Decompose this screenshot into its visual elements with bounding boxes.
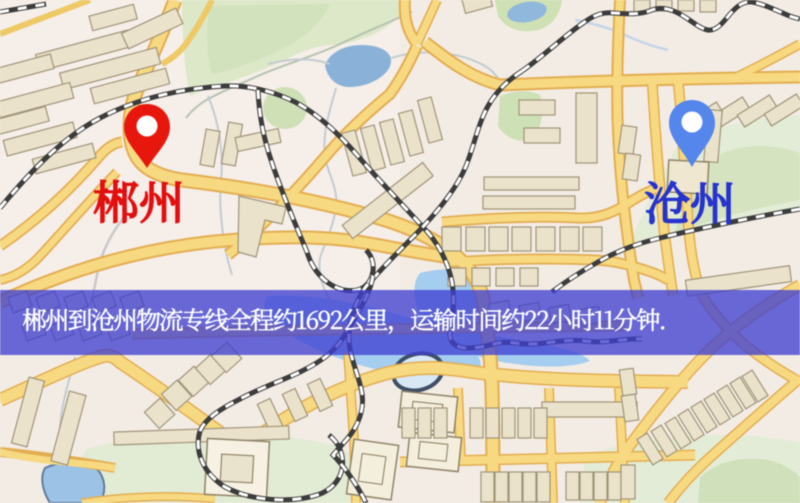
svg-text:郴州到沧州物流专线全程约1692公里，运输时间约22小时11: 郴州到沧州物流专线全程约1692公里，运输时间约22小时11分钟. [22,302,665,337]
svg-text:郴州: 郴州 [93,167,185,233]
svg-text:沧州: 沧州 [644,168,736,234]
